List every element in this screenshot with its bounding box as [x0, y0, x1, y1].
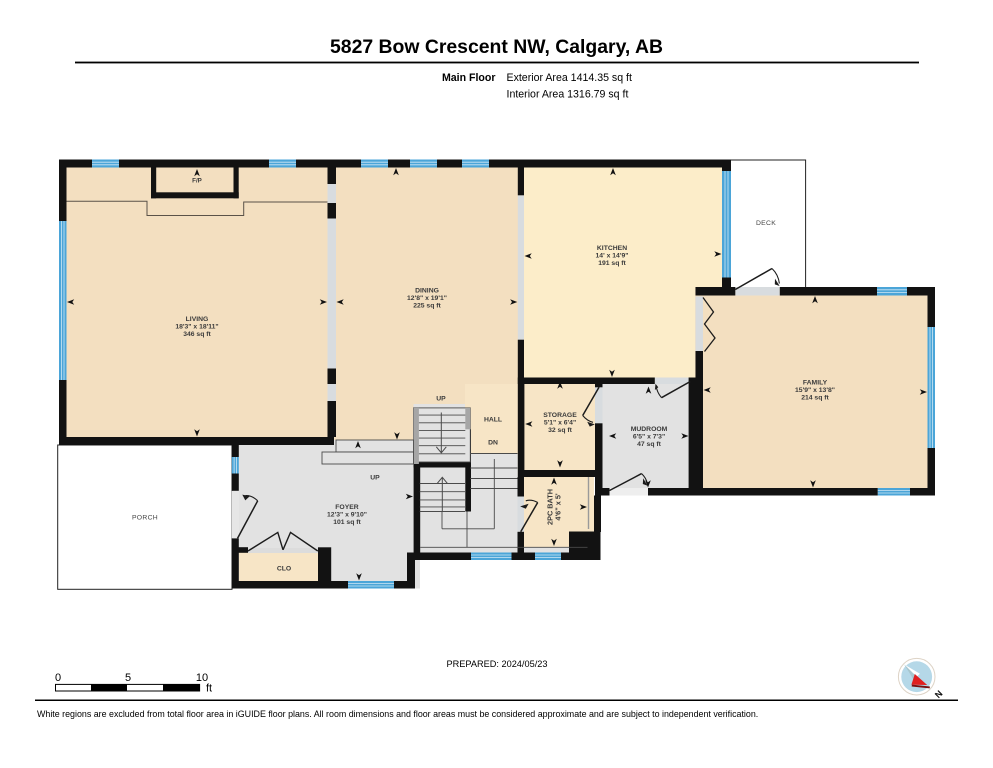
svg-text:14' x 14'9": 14' x 14'9" [596, 253, 629, 260]
svg-text:White regions are excluded fro: White regions are excluded from total fl… [37, 709, 758, 719]
svg-text:0: 0 [55, 672, 61, 684]
svg-text:5: 5 [125, 672, 131, 684]
svg-text:Main Floor: Main Floor [442, 72, 496, 84]
svg-text:MUDROOM: MUDROOM [631, 426, 668, 433]
svg-text:15'9" x 13'8": 15'9" x 13'8" [795, 387, 835, 394]
svg-text:KITCHEN: KITCHEN [597, 245, 627, 252]
svg-text:12'3" x 9'10": 12'3" x 9'10" [327, 512, 367, 519]
svg-text:4'6" x 5': 4'6" x 5' [554, 493, 563, 520]
svg-text:ft: ft [206, 683, 212, 695]
svg-text:Exterior Area 1414.35 sq ft: Exterior Area 1414.35 sq ft [507, 72, 632, 84]
svg-text:F/P: F/P [192, 177, 202, 184]
svg-text:DINING: DINING [415, 287, 439, 294]
svg-text:LIVING: LIVING [186, 316, 209, 323]
svg-text:225 sq ft: 225 sq ft [413, 302, 441, 309]
svg-text:STORAGE: STORAGE [543, 412, 577, 419]
svg-text:101 sq ft: 101 sq ft [333, 519, 361, 526]
svg-text:DECK: DECK [756, 220, 776, 227]
svg-text:5827 Bow Crescent NW, Calgary,: 5827 Bow Crescent NW, Calgary, AB [330, 36, 663, 58]
svg-text:5'1" x 6'4": 5'1" x 6'4" [544, 420, 576, 427]
svg-text:6'5" x 7'3": 6'5" x 7'3" [633, 434, 665, 441]
svg-text:N: N [933, 688, 945, 700]
svg-text:PORCH: PORCH [132, 514, 158, 521]
svg-text:DN: DN [488, 439, 498, 446]
svg-text:18'3" x 18'11": 18'3" x 18'11" [175, 324, 218, 331]
svg-text:CLO: CLO [277, 565, 291, 572]
svg-text:191 sq ft: 191 sq ft [598, 260, 626, 267]
svg-text:47 sq ft: 47 sq ft [637, 441, 662, 448]
svg-text:HALL: HALL [484, 416, 502, 423]
svg-text:UP: UP [370, 474, 380, 481]
svg-text:UP: UP [436, 395, 446, 402]
svg-text:Interior Area 1316.79 sq ft: Interior Area 1316.79 sq ft [507, 88, 629, 100]
svg-text:32 sq ft: 32 sq ft [548, 427, 573, 434]
svg-text:214 sq ft: 214 sq ft [801, 395, 829, 402]
svg-text:FOYER: FOYER [335, 504, 359, 511]
svg-text:FAMILY: FAMILY [803, 380, 828, 387]
svg-text:346 sq ft: 346 sq ft [183, 331, 211, 338]
svg-text:PREPARED: 2024/05/23: PREPARED: 2024/05/23 [447, 659, 548, 669]
svg-text:12'8" x 19'1": 12'8" x 19'1" [407, 295, 447, 302]
